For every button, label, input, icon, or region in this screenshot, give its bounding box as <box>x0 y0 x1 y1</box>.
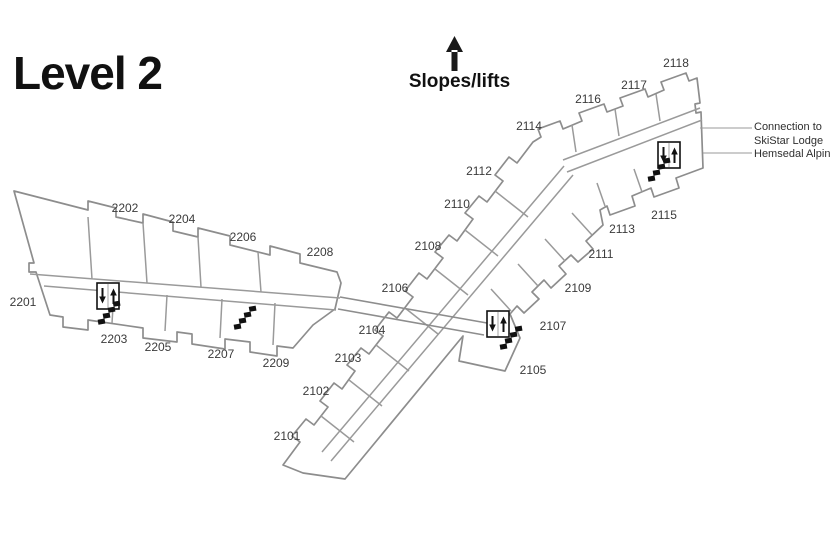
room-label-2201: 2201 <box>10 295 37 309</box>
room-label-2105: 2105 <box>520 363 547 377</box>
connection-note-line: Connection to <box>754 121 830 135</box>
elevator-icon <box>658 142 680 168</box>
room-label-2103: 2103 <box>335 351 362 365</box>
page-title: Level 2 <box>13 46 162 100</box>
room-label-2114: 2114 <box>516 119 542 133</box>
central-wing-outline <box>283 73 703 479</box>
room-label-2116: 2116 <box>575 92 601 106</box>
elevator-icon <box>487 311 509 337</box>
room-label-2208: 2208 <box>307 245 334 259</box>
room-label-2205: 2205 <box>145 340 172 354</box>
room-label-2115: 2115 <box>651 208 677 222</box>
slopes-lifts-label: Slopes/lifts <box>402 71 517 93</box>
connection-note: Connection to SkiStar Lodge Hemsedal Alp… <box>754 121 830 162</box>
room-label-2202: 2202 <box>112 201 139 215</box>
room-label-2207: 2207 <box>208 347 235 361</box>
room-label-2110: 2110 <box>444 197 470 211</box>
room-label-2204: 2204 <box>169 212 196 226</box>
room-label-2107: 2107 <box>540 319 567 333</box>
room-label-2101: 2101 <box>274 429 301 443</box>
room-label-2112: 2112 <box>466 164 492 178</box>
room-label-2104: 2104 <box>359 323 386 337</box>
room-label-2108: 2108 <box>415 239 442 253</box>
room-label-2106: 2106 <box>382 281 409 295</box>
room-label-2118: 2118 <box>663 56 689 70</box>
connection-note-line: SkiStar Lodge <box>754 135 830 149</box>
connection-leader-lines <box>700 128 752 153</box>
room-label-2113: 2113 <box>609 222 635 236</box>
room-label-2102: 2102 <box>303 384 330 398</box>
room-label-2209: 2209 <box>263 356 290 370</box>
room-label-2206: 2206 <box>230 230 257 244</box>
floor-plan-page: 2201220222032204220522062207220822092101… <box>0 0 831 555</box>
room-label-2111: 2111 <box>589 247 614 261</box>
up-arrow-icon <box>446 36 463 71</box>
connection-note-line: Hemsedal Alpin <box>754 148 830 162</box>
room-label-2203: 2203 <box>101 332 128 346</box>
room-label-2109: 2109 <box>565 281 592 295</box>
room-label-2117: 2117 <box>621 78 647 92</box>
